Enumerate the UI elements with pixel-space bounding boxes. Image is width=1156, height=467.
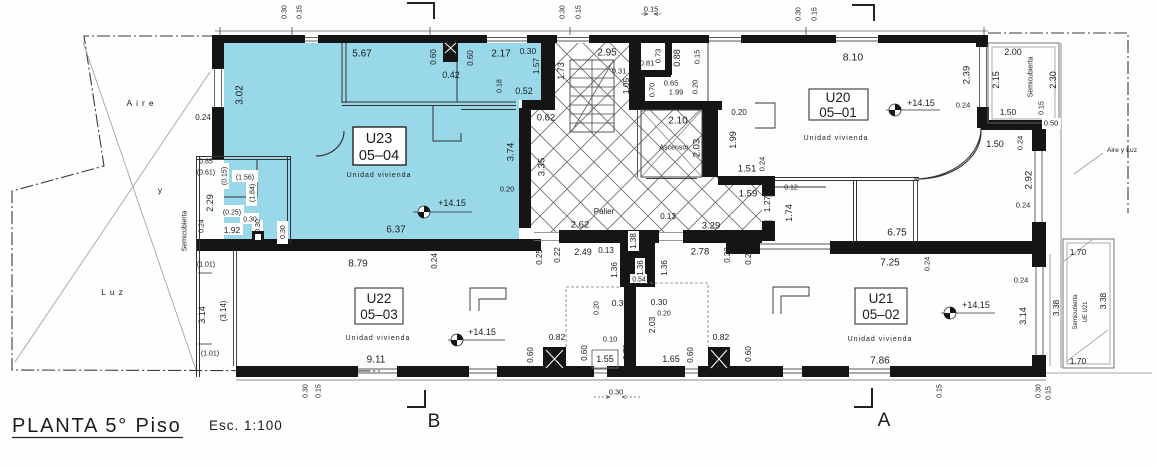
- svg-text:Semicubierta: Semicubierta: [1073, 294, 1079, 330]
- svg-text:0.82: 0.82: [549, 332, 566, 342]
- svg-text:0.24: 0.24: [1016, 201, 1031, 210]
- svg-text:05–04: 05–04: [359, 148, 399, 164]
- svg-text:2.30: 2.30: [1048, 71, 1058, 89]
- svg-text:2.49: 2.49: [574, 247, 592, 257]
- svg-text:Palier: Palier: [594, 207, 615, 216]
- svg-text:0.15: 0.15: [575, 5, 582, 19]
- svg-text:0.81: 0.81: [640, 59, 655, 68]
- svg-text:(3.14): (3.14): [219, 300, 228, 321]
- svg-text:0.25: 0.25: [535, 249, 544, 265]
- svg-text:1.65: 1.65: [662, 354, 680, 364]
- svg-text:1.70: 1.70: [1070, 247, 1087, 257]
- svg-text:0.31: 0.31: [612, 67, 627, 76]
- svg-text:0.15: 0.15: [1045, 386, 1052, 400]
- svg-text:U23: U23: [366, 131, 393, 147]
- svg-text:1.51: 1.51: [738, 163, 757, 174]
- svg-text:0.24: 0.24: [430, 253, 439, 269]
- svg-text:(0.61): (0.61): [197, 169, 215, 176]
- svg-text:0.30: 0.30: [651, 297, 668, 307]
- svg-text:2.03: 2.03: [647, 316, 657, 333]
- svg-text:0.24: 0.24: [198, 219, 205, 233]
- svg-text:0.88: 0.88: [672, 49, 682, 67]
- svg-text:1.50: 1.50: [986, 139, 1004, 149]
- svg-text:2.29: 2.29: [205, 194, 215, 212]
- svg-text:1.33: 1.33: [622, 309, 632, 326]
- svg-text:(0.15): (0.15): [221, 167, 228, 185]
- svg-text:0.24: 0.24: [1016, 136, 1025, 151]
- svg-text:3.35: 3.35: [536, 158, 547, 177]
- svg-text:Aire y Luz: Aire y Luz: [1107, 147, 1138, 154]
- svg-text:1.99: 1.99: [728, 131, 738, 149]
- svg-text:2.17: 2.17: [491, 49, 511, 60]
- svg-text:0.20: 0.20: [731, 108, 747, 117]
- svg-text:1.57: 1.57: [531, 57, 541, 74]
- svg-text:U21: U21: [869, 291, 894, 306]
- svg-text:U22: U22: [367, 291, 392, 306]
- svg-text:1.27: 1.27: [762, 195, 772, 212]
- svg-text:2.95: 2.95: [597, 48, 617, 59]
- svg-text:0.30: 0.30: [281, 5, 288, 19]
- svg-text:0.30: 0.30: [255, 219, 262, 233]
- svg-text:0.15: 0.15: [1038, 101, 1045, 115]
- svg-text:+14.15: +14.15: [438, 198, 466, 208]
- svg-text:0.15: 0.15: [693, 50, 702, 65]
- svg-text:1.36: 1.36: [636, 260, 645, 276]
- svg-text:0.52: 0.52: [515, 86, 533, 96]
- svg-text:0.30: 0.30: [520, 46, 537, 56]
- svg-text:6.37: 6.37: [386, 225, 406, 236]
- svg-text:0.24: 0.24: [195, 113, 211, 122]
- svg-text:1.36: 1.36: [660, 260, 669, 276]
- svg-text:PLANTA 5° Piso: PLANTA 5° Piso: [12, 415, 182, 437]
- svg-text:0.30: 0.30: [1035, 384, 1042, 398]
- svg-text:0.70: 0.70: [648, 83, 657, 98]
- svg-text:+14.15: +14.15: [468, 327, 496, 337]
- svg-text:7.25: 7.25: [880, 258, 900, 269]
- svg-text:Semicubierta: Semicubierta: [1027, 56, 1034, 97]
- svg-text:0.60: 0.60: [580, 345, 589, 361]
- svg-text:0.42: 0.42: [442, 70, 460, 80]
- svg-text:0.65: 0.65: [664, 79, 679, 88]
- svg-text:Unidad vivienda: Unidad vivienda: [804, 135, 869, 142]
- svg-text:Ascensor: Ascensor: [659, 144, 689, 151]
- svg-text:0.30: 0.30: [795, 7, 802, 21]
- svg-text:1.36: 1.36: [610, 262, 619, 278]
- svg-text:U20: U20: [826, 90, 851, 105]
- svg-text:Aire: Aire: [126, 98, 157, 108]
- svg-text:0.60: 0.60: [744, 346, 753, 362]
- svg-text:1.05: 1.05: [621, 77, 631, 94]
- svg-text:0.12: 0.12: [784, 184, 798, 191]
- svg-text:(1.84): (1.84): [249, 184, 256, 202]
- svg-text:3.29: 3.29: [702, 220, 721, 231]
- svg-text:0.20: 0.20: [691, 80, 700, 95]
- svg-text:1.74: 1.74: [784, 204, 794, 222]
- svg-text:2.92: 2.92: [1023, 171, 1034, 190]
- svg-text:1.99: 1.99: [669, 88, 684, 97]
- svg-text:0.22: 0.22: [553, 247, 562, 263]
- svg-text:3.38: 3.38: [1051, 299, 1061, 316]
- svg-text:5.67: 5.67: [352, 49, 372, 60]
- svg-text:0.60: 0.60: [466, 50, 475, 66]
- svg-text:9.11: 9.11: [367, 355, 386, 366]
- svg-text:1.73: 1.73: [556, 62, 566, 80]
- svg-text:B: B: [428, 411, 441, 432]
- svg-text:2.03: 2.03: [691, 139, 702, 158]
- svg-text:0.20: 0.20: [500, 185, 515, 194]
- svg-text:1.59: 1.59: [739, 188, 758, 199]
- svg-text:05–01: 05–01: [819, 105, 857, 120]
- svg-text:2.78: 2.78: [691, 246, 710, 257]
- svg-text:2.39: 2.39: [961, 66, 972, 85]
- svg-text:0.85: 0.85: [199, 158, 213, 165]
- svg-text:2.15: 2.15: [991, 71, 1001, 89]
- svg-text:(1.01): (1.01): [197, 261, 215, 268]
- svg-text:1.92: 1.92: [224, 225, 241, 235]
- svg-text:0.13: 0.13: [660, 212, 676, 221]
- svg-text:UE U21: UE U21: [1083, 301, 1089, 323]
- svg-text:1.55: 1.55: [596, 354, 614, 364]
- svg-text:1.70: 1.70: [1070, 356, 1087, 366]
- svg-text:Luz: Luz: [101, 287, 127, 297]
- svg-text:0.50: 0.50: [1044, 119, 1059, 128]
- svg-text:0.30: 0.30: [559, 5, 566, 19]
- svg-text:0.73: 0.73: [654, 49, 663, 64]
- svg-text:2.00: 2.00: [1004, 47, 1022, 57]
- svg-text:Esc. 1:100: Esc. 1:100: [209, 418, 283, 433]
- svg-text:A: A: [878, 410, 891, 431]
- svg-text:0.20: 0.20: [593, 301, 600, 315]
- svg-text:0.13: 0.13: [598, 246, 614, 255]
- svg-text:05–03: 05–03: [360, 307, 398, 322]
- svg-text:1.38: 1.38: [629, 233, 638, 249]
- svg-text:(1.01): (1.01): [201, 350, 219, 357]
- svg-text:0.15: 0.15: [811, 7, 818, 21]
- svg-text:3.02: 3.02: [235, 85, 246, 105]
- svg-text:0.30: 0.30: [280, 225, 287, 239]
- svg-text:0.60: 0.60: [429, 49, 438, 65]
- svg-text:Unidad vivienda: Unidad vivienda: [848, 336, 913, 343]
- svg-text:+14.15: +14.15: [907, 98, 935, 108]
- svg-text:0.18: 0.18: [496, 79, 503, 93]
- svg-text:3.14: 3.14: [197, 306, 207, 324]
- svg-text:7.86: 7.86: [870, 356, 890, 367]
- svg-text:0.24: 0.24: [956, 101, 971, 110]
- svg-text:+14.15: +14.15: [962, 300, 990, 310]
- svg-text:0.62: 0.62: [537, 112, 556, 123]
- svg-text:0.15: 0.15: [936, 384, 943, 398]
- svg-text:05–02: 05–02: [862, 307, 900, 322]
- svg-text:0.60: 0.60: [686, 347, 695, 363]
- svg-text:Unidad vivienda: Unidad vivienda: [346, 335, 411, 342]
- svg-text:0.22: 0.22: [723, 247, 732, 263]
- svg-text:3.74: 3.74: [505, 143, 516, 162]
- svg-text:Unidad vivienda: Unidad vivienda: [347, 172, 412, 179]
- svg-text:0.24: 0.24: [923, 257, 932, 272]
- svg-text:6.75: 6.75: [887, 228, 907, 239]
- svg-text:0.15: 0.15: [315, 384, 322, 398]
- svg-text:0.54: 0.54: [632, 276, 646, 283]
- svg-text:2.10: 2.10: [668, 116, 688, 127]
- svg-text:8.79: 8.79: [348, 259, 368, 270]
- svg-text:0.30: 0.30: [612, 298, 629, 308]
- svg-text:0.25: 0.25: [744, 249, 753, 265]
- svg-text:0.24: 0.24: [758, 157, 767, 172]
- svg-text:3.38: 3.38: [1098, 292, 1108, 309]
- svg-text:(1.56): (1.56): [236, 174, 254, 181]
- svg-text:3.14: 3.14: [1018, 307, 1028, 325]
- svg-text:0.15: 0.15: [644, 5, 659, 14]
- svg-text:0.82: 0.82: [713, 332, 730, 342]
- svg-text:0.70: 0.70: [622, 344, 631, 360]
- svg-text:2.62: 2.62: [571, 219, 590, 230]
- svg-text:0.30: 0.30: [302, 384, 309, 398]
- svg-text:(0.25): (0.25): [223, 209, 241, 216]
- svg-text:0.10: 0.10: [603, 335, 618, 344]
- svg-text:0.15: 0.15: [296, 5, 303, 19]
- svg-text:8.10: 8.10: [843, 52, 864, 64]
- svg-text:0.20: 0.20: [657, 310, 671, 317]
- svg-text:1.50: 1.50: [1000, 107, 1017, 117]
- svg-text:Semicubierta: Semicubierta: [181, 210, 188, 251]
- svg-text:0.30: 0.30: [609, 388, 624, 397]
- svg-text:0.24: 0.24: [1014, 276, 1029, 285]
- svg-text:0.60: 0.60: [526, 347, 535, 363]
